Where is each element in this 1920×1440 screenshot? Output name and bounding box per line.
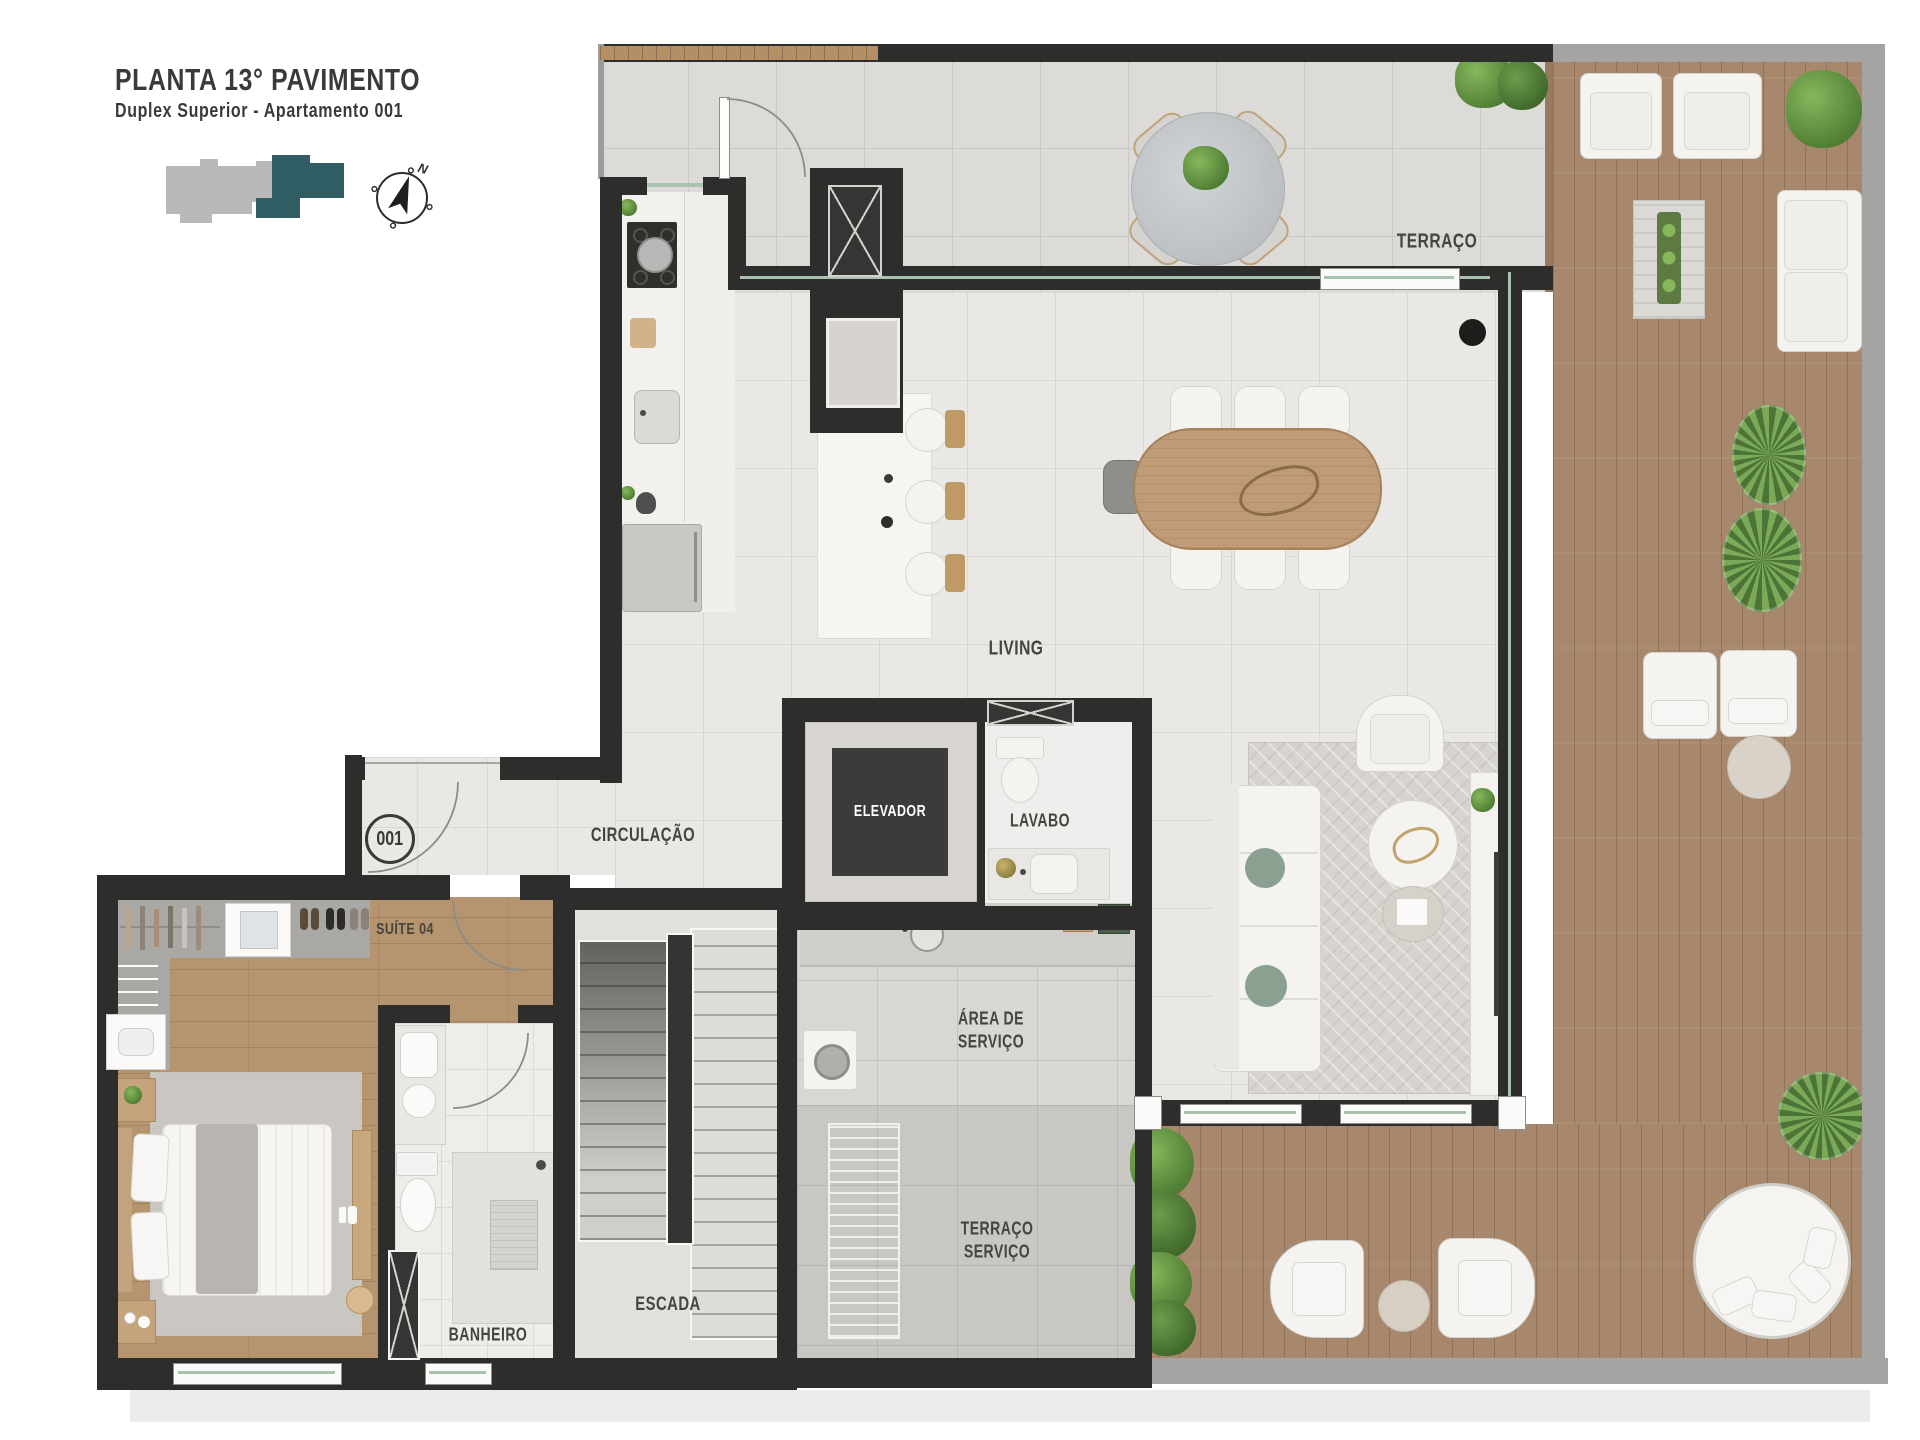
room-label-area-servico: ÁREA DE SERVIÇO (958, 1008, 1024, 1053)
suite-window-glass (178, 1371, 335, 1374)
terrace-planter (1498, 60, 1548, 110)
room-label-terraco-servico: TERRAÇO SERVIÇO (961, 1218, 1034, 1263)
wall-bath-top-b (518, 1005, 570, 1023)
bar-stool-back (945, 410, 965, 448)
hanging-clothes-icon (168, 906, 173, 948)
wall-bath-top-a (378, 1005, 450, 1023)
loveseat-cushion (1784, 200, 1848, 270)
south-door-glass-a (1184, 1111, 1296, 1114)
kitchen-door-glass (647, 183, 703, 187)
daybed-pillow (1750, 1289, 1797, 1323)
entry-threshold (365, 762, 500, 764)
loveseat-cushion (1784, 272, 1848, 342)
deck-plant (1786, 70, 1862, 148)
towel-roll-icon (118, 1028, 154, 1056)
drying-rack (828, 1123, 900, 1339)
wall-stair-left (553, 888, 575, 1390)
suite-window (173, 1363, 342, 1385)
kitchen-sink (634, 390, 680, 444)
wall-wing-top-a (97, 875, 450, 900)
wall-entry-top-a (345, 757, 365, 780)
compass-needle: N (362, 158, 442, 238)
room-label-suite04: SUÍTE 04 (376, 921, 434, 939)
hanging-clothes-icon (196, 906, 201, 950)
bathroom-window (425, 1363, 492, 1385)
book-icon (1396, 898, 1428, 926)
bed-throw-blanket (196, 1124, 258, 1294)
south-door-glass-b (1344, 1111, 1466, 1114)
room-label-terraco: TERRAÇO (1397, 231, 1477, 254)
parapet-top-deck (1553, 44, 1868, 62)
bedroom-stool (346, 1286, 374, 1314)
lavabo-decor-plant (996, 858, 1016, 878)
bath-sink (400, 1032, 438, 1078)
deck-grass-plant (1722, 508, 1802, 612)
wall-lavabo-right (1132, 698, 1152, 930)
bed-pillow (130, 1133, 170, 1203)
hanging-clothes-icon (126, 908, 131, 948)
tv-screen (1494, 852, 1499, 1016)
deck-side-table (1378, 1280, 1430, 1332)
hanging-clothes-icon (154, 909, 159, 947)
terraco-servico-line1: TERRAÇO (961, 1218, 1034, 1241)
console-plant (1471, 788, 1495, 812)
refrigerator (622, 524, 702, 612)
wall-stair-top (553, 888, 797, 910)
room-label-elevador: ELEVADOR (854, 803, 926, 821)
duct-shaft-icon (828, 185, 882, 277)
lounger-pillow (1728, 698, 1788, 724)
bath-duct-shaft-icon (388, 1250, 420, 1360)
kitchen-plant (620, 199, 637, 216)
shoes-pair-icon (300, 908, 308, 930)
parapet-right (1862, 44, 1888, 1384)
shower-head-icon (536, 1160, 546, 1170)
bathroom-window-glass (429, 1371, 486, 1374)
bath-sink-round (402, 1084, 436, 1118)
unit-number-text: 001 (377, 828, 404, 851)
lavabo-toilet-tank (996, 737, 1044, 759)
south-sliding-door-b (1340, 1104, 1472, 1124)
area-servico-line1: ÁREA DE (958, 1008, 1024, 1031)
kitchen-faucet (640, 410, 646, 416)
dining-chair (1170, 386, 1222, 434)
bedroom-bench (352, 1130, 372, 1280)
terrace-sliding-door-glass (1324, 276, 1454, 279)
structural-column-dot (1459, 319, 1486, 346)
refrigerator-handle (694, 532, 697, 602)
wall-service-right (1135, 930, 1152, 1360)
wall-entry-top-b (500, 757, 610, 780)
wall-kitchen-top-a (600, 177, 647, 195)
south-door-cap-left (1134, 1096, 1162, 1130)
room-label-lavabo: LAVABO (1010, 811, 1070, 832)
deck-armchair-cushion (1684, 92, 1750, 150)
dining-chair (1298, 386, 1350, 434)
glass-wall-deck-line (1508, 272, 1511, 1098)
nightstand-plant (124, 1086, 142, 1104)
deck-armchair-cushion (1590, 92, 1652, 150)
sofa-pillow-green (1245, 965, 1287, 1007)
sofa-seam (1240, 925, 1318, 927)
parapet-bottom-deck (1148, 1358, 1888, 1384)
room-label-living: LIVING (989, 638, 1044, 661)
deck-grass-plant (1732, 405, 1806, 505)
page-subtitle: Duplex Superior - Apartamento 001 (115, 100, 403, 123)
terraco-servico-line2: SERVIÇO (961, 1240, 1034, 1263)
lavabo-toilet-bowl (1001, 757, 1039, 803)
compass-north-label: N (416, 160, 430, 177)
south-door-cap-right (1498, 1096, 1526, 1130)
area-servico-line2: SERVIÇO (958, 1030, 1024, 1053)
floor-plan-canvas: PLANTA 13° PAVIMENTO Duplex Superior - A… (0, 0, 1920, 1440)
room-label-circulacao: CIRCULAÇÃO (591, 825, 695, 847)
deck-edge-strip (1545, 60, 1553, 292)
folded-shirt-icon (240, 911, 278, 949)
bed-pillow (130, 1211, 170, 1281)
wall-wing-top-b (520, 875, 570, 900)
south-sliding-door-a (1180, 1104, 1302, 1124)
lounge-chair-cushion (1292, 1262, 1346, 1316)
hanging-clothes-icon (140, 906, 145, 950)
washing-machine-door (814, 1044, 850, 1080)
hanging-clothes-icon (182, 908, 187, 948)
wall-stair-service (777, 888, 797, 1390)
stair-flight-up (690, 928, 779, 1340)
wall-service-bottom (782, 1358, 1152, 1388)
wall-kitchen-left (600, 177, 622, 783)
bath-toilet-tank (396, 1152, 438, 1176)
lounger-pillow (1651, 700, 1709, 726)
lavabo-vent-window-icon (987, 700, 1074, 726)
shoes-pair-icon (350, 908, 358, 930)
kitchen-door-leaf (719, 97, 730, 179)
room-label-escada: ESCADA (635, 1294, 700, 1316)
island-faucet (884, 474, 893, 483)
lavabo-sink (1030, 854, 1078, 894)
wall-wing-left (97, 875, 118, 1390)
terrace-sliding-door (1320, 268, 1460, 290)
bar-stool-back (945, 482, 965, 520)
parapet-left-terrace (598, 44, 604, 179)
cutting-board (630, 318, 656, 348)
core-marble-panel (826, 318, 900, 408)
bar-stool-back (945, 554, 965, 592)
burner-icon (660, 270, 675, 285)
nightstand-cups (124, 1312, 136, 1324)
bed-headboard (118, 1128, 132, 1292)
kettle-icon (636, 492, 656, 514)
table-planter (1657, 212, 1681, 304)
nightstand (114, 1300, 156, 1344)
deck-round-table (1727, 735, 1791, 799)
shoes-pair-icon (326, 908, 334, 930)
island-sink-drain (881, 516, 893, 528)
burner-icon (633, 270, 648, 285)
unit-number-badge: 001 (365, 814, 415, 864)
bar-stool (905, 408, 949, 452)
bar-stool (905, 480, 949, 524)
dining-chair (1234, 386, 1286, 434)
bath-toilet-bowl (400, 1178, 436, 1232)
ground-strip (130, 1390, 1870, 1422)
slippers-icon (338, 1206, 347, 1224)
room-label-banheiro: BANHEIRO (449, 1325, 528, 1346)
shower-drain-mat (490, 1200, 538, 1270)
lounge-chair-cushion (1458, 1260, 1512, 1316)
stair-divider (666, 933, 694, 1245)
palm-plant (1778, 1072, 1866, 1160)
kitchen-plant-small (621, 486, 635, 500)
lavabo-faucet (1020, 869, 1026, 875)
page-title: PLANTA 13° PAVIMENTO (115, 62, 420, 98)
building-key-map (158, 150, 363, 232)
armchair-cushion (1370, 714, 1430, 764)
bar-stool (905, 552, 949, 596)
stair-flight-down (578, 940, 670, 1242)
compass-rose: N (362, 158, 442, 238)
sofa-back (1213, 785, 1239, 1070)
pan-icon (637, 237, 673, 273)
sofa-pillow-green (1245, 848, 1285, 888)
pergola-slats (600, 46, 878, 60)
terrace-table-plant (1183, 146, 1229, 190)
